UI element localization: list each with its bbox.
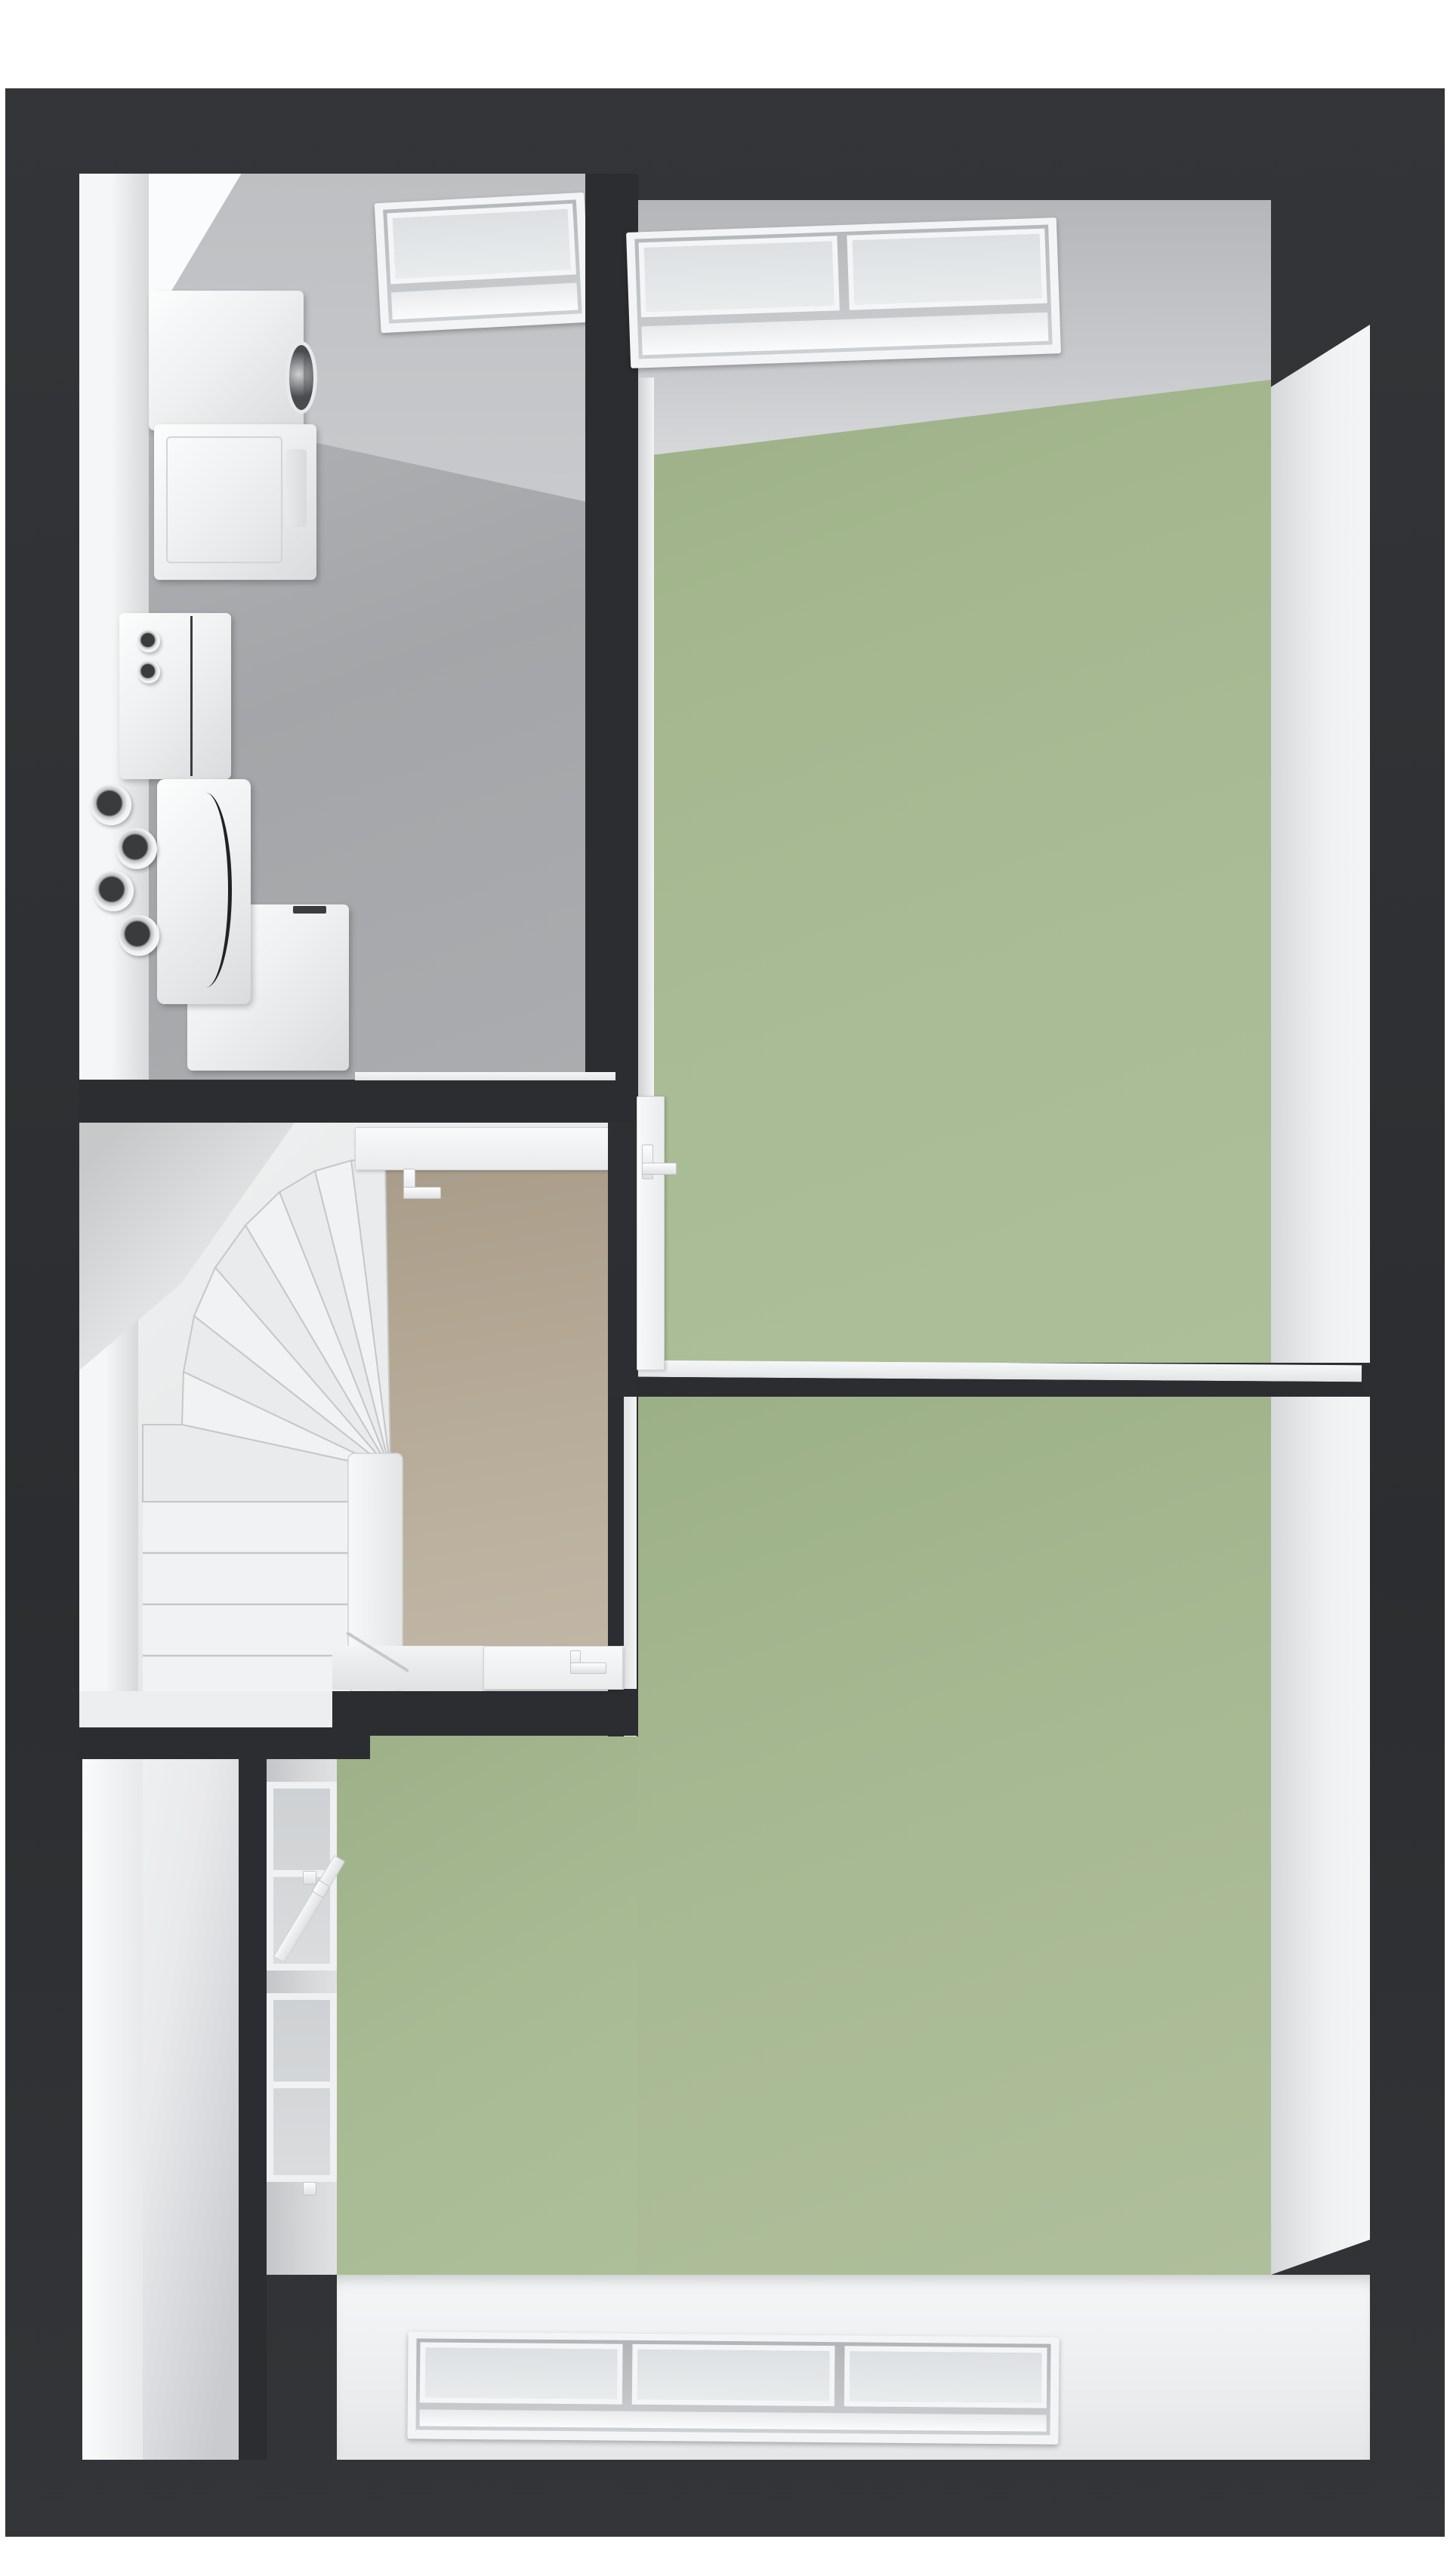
flue-pipe-2 [137, 661, 160, 683]
window-handle [303, 1871, 316, 1884]
hall-bottom-floor [79, 1691, 332, 1727]
roof-window-lower-bedroom [407, 2331, 1059, 2445]
wall-utility-hall-cap [355, 1072, 615, 1080]
flue-pipe-1 [137, 630, 160, 652]
duct-pipe-2 [116, 828, 157, 869]
duct-pipe-4 [119, 915, 159, 956]
roof-window-upper-panes [639, 229, 1047, 317]
roof-window-lower-panes [420, 2342, 1047, 2408]
roof-window-pane [844, 2346, 1047, 2408]
roof-window-lower-recess [416, 2338, 1051, 2435]
roof-window-utility-recess [383, 199, 582, 323]
roof-window-utility [375, 193, 591, 333]
wall-passage-bedroom [239, 1734, 267, 2460]
winder-fan [143, 1159, 390, 1502]
heat-pump-unit [119, 613, 231, 779]
ventilation-unit [157, 779, 251, 1004]
tank-slot [293, 906, 326, 914]
door-lower-bedroom-handle-bar [570, 1662, 606, 1674]
right-wall-band-upper [1271, 325, 1370, 1363]
roof-window-upper-sill [641, 312, 1048, 355]
roof-window-pane [847, 229, 1047, 310]
wall-hall-lower-bedroom [360, 1689, 637, 1736]
window-handle [303, 2182, 316, 2195]
stair-hall [79, 1123, 608, 1691]
roof-window-pane [639, 236, 840, 317]
washer-control-panel [285, 449, 307, 527]
wall-utility-hall [79, 1080, 638, 1123]
roof-window-upper-recess [634, 224, 1052, 359]
roof-window-utility-panes [387, 204, 576, 284]
window-sash-lower [267, 1993, 337, 2182]
heat-pump-seam [190, 616, 193, 776]
dryer-unit [149, 291, 304, 430]
roof-window-pane [632, 2344, 835, 2406]
passage-left-wall [82, 1759, 143, 2460]
door-upper-bedroom-leaf [637, 1096, 665, 1370]
dryer-drum-door [285, 341, 317, 414]
upper-bedroom [638, 200, 1271, 1363]
side-passage [82, 1759, 239, 2460]
ventilation-door-arc [180, 793, 232, 988]
wall-passage-top [79, 1727, 370, 1759]
washer-lid-outline [166, 436, 282, 563]
wall-hall-lower-divider-trim [624, 1397, 637, 1736]
door-utility-handle-bar [403, 1187, 441, 1199]
roof-window-pane [387, 204, 576, 284]
duct-pipe-1 [91, 784, 131, 825]
roof-window-lower-sill [420, 2410, 1047, 2432]
roof-window-upper-bedroom [626, 217, 1061, 368]
winder-staircase [125, 1153, 487, 1691]
roof-window-pane [420, 2342, 623, 2404]
lower-bedroom-extension [337, 1736, 637, 2275]
right-wall-band-lower [1271, 1397, 1370, 2275]
lower-bedroom [637, 1397, 1271, 2275]
duct-pipe-3 [93, 870, 134, 911]
roof-window-utility-sill [391, 282, 578, 319]
door-upper-bedroom-handle-bar [642, 1163, 677, 1175]
floor-plan-canvas [0, 0, 1450, 2576]
door-utility-leaf [355, 1127, 608, 1170]
window-sash-rail [273, 2081, 330, 2088]
lower-bedroom-window-wall [267, 1759, 337, 2275]
washer-unit [154, 424, 316, 580]
